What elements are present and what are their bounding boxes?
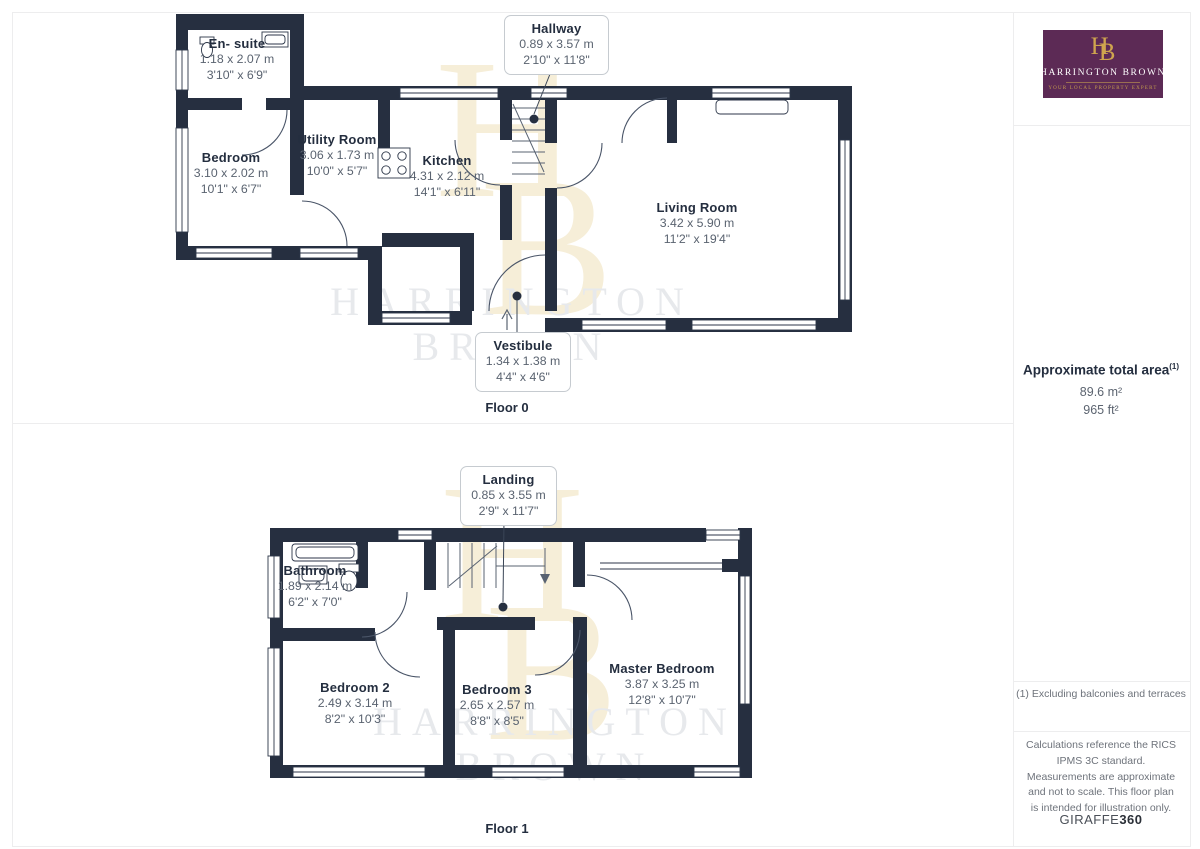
agency-tagline: YOUR LOCAL PROPERTY EXPERT xyxy=(1048,86,1157,91)
room-label-bedroom3: Bedroom 3 2.65 x 2.57 m 8'8" x 8'5" xyxy=(435,682,559,730)
room-name: En- suite xyxy=(183,36,291,51)
callout-landing: Landing 0.85 x 3.55 m 2'9" x 11'7" xyxy=(460,466,557,526)
agency-logo: HB HARRINGTON BROWN YOUR LOCAL PROPERTY … xyxy=(1043,30,1163,98)
room-dim-imperial: 4'4" x 4'6" xyxy=(479,370,567,385)
room-label-bedroom2: Bedroom 2 2.49 x 3.14 m 8'2" x 10'3" xyxy=(293,680,417,728)
callout-hallway: Hallway 0.89 x 3.57 m 2'10" x 11'8" xyxy=(504,15,609,75)
room-name: Utility Room xyxy=(278,132,396,147)
room-name: Bathroom xyxy=(258,563,372,578)
room-label-kitchen: Kitchen 4.31 x 2.12 m 14'1" x 6'11" xyxy=(388,153,506,201)
monogram-b: B xyxy=(1099,43,1116,63)
room-label-master-bedroom: Master Bedroom 3.87 x 3.25 m 12'8" x 10'… xyxy=(592,661,732,709)
room-dim-metric: 4.31 x 2.12 m xyxy=(388,169,506,184)
room-dim-metric: 2.49 x 3.14 m xyxy=(293,696,417,711)
room-name: Vestibule xyxy=(479,338,567,353)
room-name: Bedroom xyxy=(172,150,290,165)
room-name: Master Bedroom xyxy=(592,661,732,676)
floor1-caption: Floor 1 xyxy=(447,821,567,836)
room-dim-metric: 2.65 x 2.57 m xyxy=(435,698,559,713)
room-name: Living Room xyxy=(637,200,757,215)
room-dim-metric: 1.34 x 1.38 m xyxy=(479,354,567,369)
room-dim-imperial: 10'0" x 5'7" xyxy=(278,164,396,179)
room-dim-imperial: 2'10" x 11'8" xyxy=(508,53,605,68)
vendor-logo: GIRAFFE360 xyxy=(1013,812,1189,827)
callout-vestibule: Vestibule 1.34 x 1.38 m 4'4" x 4'6" xyxy=(475,332,571,392)
room-dim-imperial: 3'10" x 6'9" xyxy=(183,68,291,83)
room-label-utility: Utility Room 3.06 x 1.73 m 10'0" x 5'7" xyxy=(278,132,396,180)
room-dim-metric: 3.87 x 3.25 m xyxy=(592,677,732,692)
vendor-suffix: 360 xyxy=(1119,812,1142,827)
room-label-ensuite: En- suite 1.18 x 2.07 m 3'10" x 6'9" xyxy=(183,36,291,84)
room-dim-imperial: 8'2" x 10'3" xyxy=(293,712,417,727)
vendor-name: GIRAFFE xyxy=(1059,812,1119,827)
total-area-superscript: (1) xyxy=(1169,362,1179,371)
room-name: Bedroom 3 xyxy=(435,682,559,697)
room-name: Kitchen xyxy=(388,153,506,168)
room-dim-imperial: 12'8" x 10'7" xyxy=(592,693,732,708)
room-label-bedroom: Bedroom 3.10 x 2.02 m 10'1" x 6'7" xyxy=(172,150,290,198)
floor0-caption: Floor 0 xyxy=(447,400,567,415)
agency-monogram: HB xyxy=(1091,37,1116,63)
room-dim-metric: 3.42 x 5.90 m xyxy=(637,216,757,231)
room-dim-metric: 0.85 x 3.55 m xyxy=(464,488,553,503)
room-dim-metric: 3.10 x 2.02 m xyxy=(172,166,290,181)
disclaimer-text: Calculations reference the RICS IPMS 3C … xyxy=(1026,738,1176,817)
room-dim-metric: 3.06 x 1.73 m xyxy=(278,148,396,163)
total-area-title: Approximate total area(1) xyxy=(1013,362,1189,378)
room-dim-metric: 0.89 x 3.57 m xyxy=(508,37,605,52)
room-dim-imperial: 8'8" x 8'5" xyxy=(435,714,559,729)
total-area-imperial: 965 ft² xyxy=(1013,403,1189,417)
room-dim-imperial: 2'9" x 11'7" xyxy=(464,504,553,519)
room-label-living: Living Room 3.42 x 5.90 m 11'2" x 19'4" xyxy=(637,200,757,248)
floorplan-page: H B HARRINGTON BROWN H B HARRINGTON BROW… xyxy=(0,0,1200,849)
room-dim-imperial: 10'1" x 6'7" xyxy=(172,182,290,197)
total-area-block: Approximate total area(1) 89.6 m² 965 ft… xyxy=(1013,362,1189,417)
room-name: Landing xyxy=(464,472,553,487)
total-area-title-text: Approximate total area xyxy=(1023,363,1169,378)
total-area-metric: 89.6 m² xyxy=(1013,385,1189,399)
room-dim-imperial: 14'1" x 6'11" xyxy=(388,185,506,200)
room-dim-metric: 1.89 x 2.14 m xyxy=(258,579,372,594)
logo-divider xyxy=(1066,82,1140,83)
agency-name: HARRINGTON BROWN xyxy=(1040,68,1166,78)
area-footnote: (1) Excluding balconies and terraces xyxy=(1013,688,1189,700)
room-dim-metric: 1.18 x 2.07 m xyxy=(183,52,291,67)
room-dim-imperial: 11'2" x 19'4" xyxy=(637,232,757,247)
room-label-bathroom: Bathroom 1.89 x 2.14 m 6'2" x 7'0" xyxy=(258,563,372,611)
room-name: Bedroom 2 xyxy=(293,680,417,695)
room-name: Hallway xyxy=(508,21,605,36)
room-dim-imperial: 6'2" x 7'0" xyxy=(258,595,372,610)
